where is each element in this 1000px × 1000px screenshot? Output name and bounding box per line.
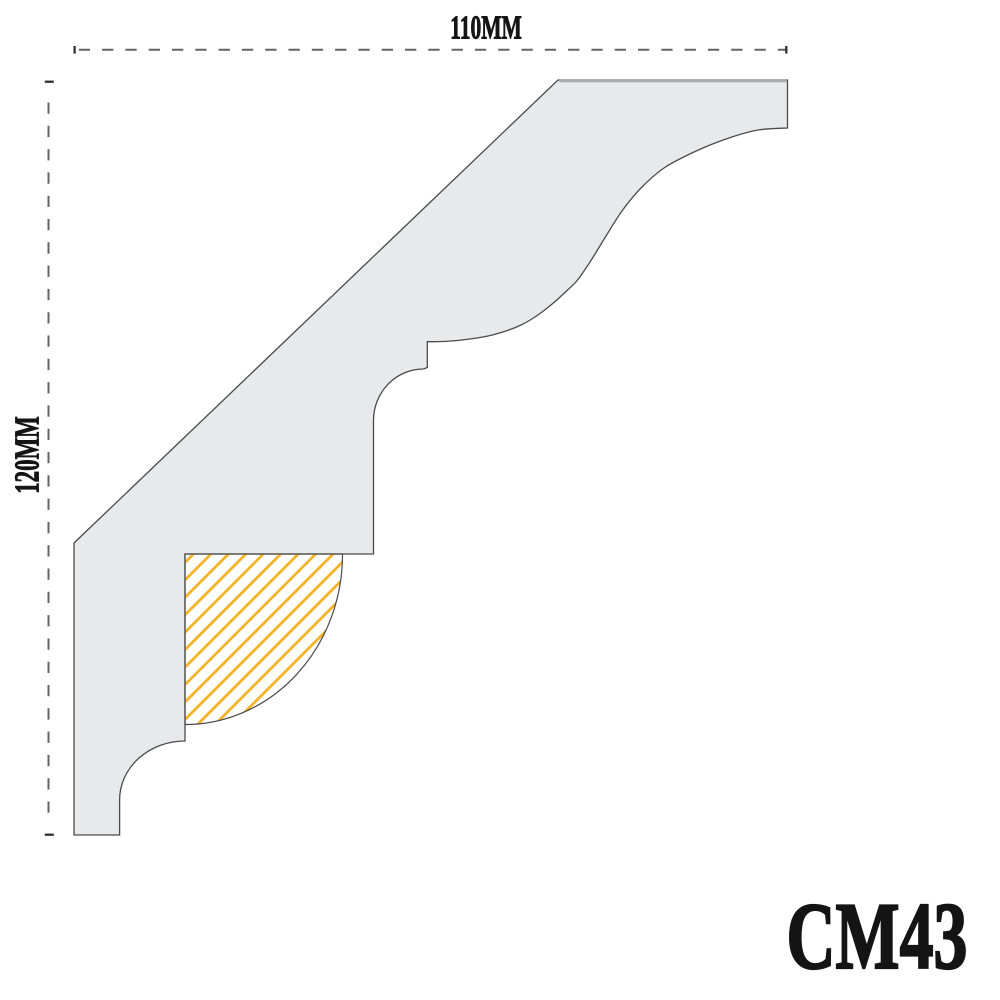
svg-text:110MM: 110MM (450, 10, 522, 47)
svg-text:CM43: CM43 (787, 883, 968, 989)
svg-text:120MM: 120MM (9, 416, 47, 494)
